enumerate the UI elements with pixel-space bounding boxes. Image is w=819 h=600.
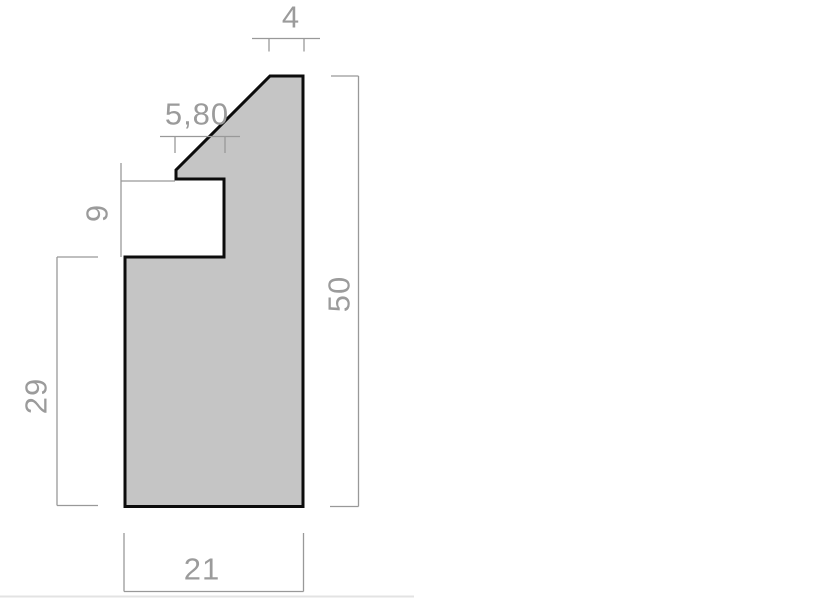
dim-overall-height-label: 50 <box>324 276 355 312</box>
drawing-canvas: 4 5,80 9 29 50 21 <box>0 0 819 600</box>
dim-lower-left-height-label: 29 <box>21 378 52 414</box>
profile-shape <box>125 76 303 507</box>
dim-lower-left-height <box>57 257 98 506</box>
dim-rebate-width-label: 5,80 <box>165 99 229 130</box>
profile-drawing <box>0 0 819 600</box>
dim-top-width-label: 4 <box>282 2 300 33</box>
dim-rebate-depth-label: 9 <box>82 204 113 222</box>
dim-rebate-depth <box>121 163 175 257</box>
dim-overall-width-label: 21 <box>184 554 220 585</box>
dim-top-width <box>252 39 320 52</box>
